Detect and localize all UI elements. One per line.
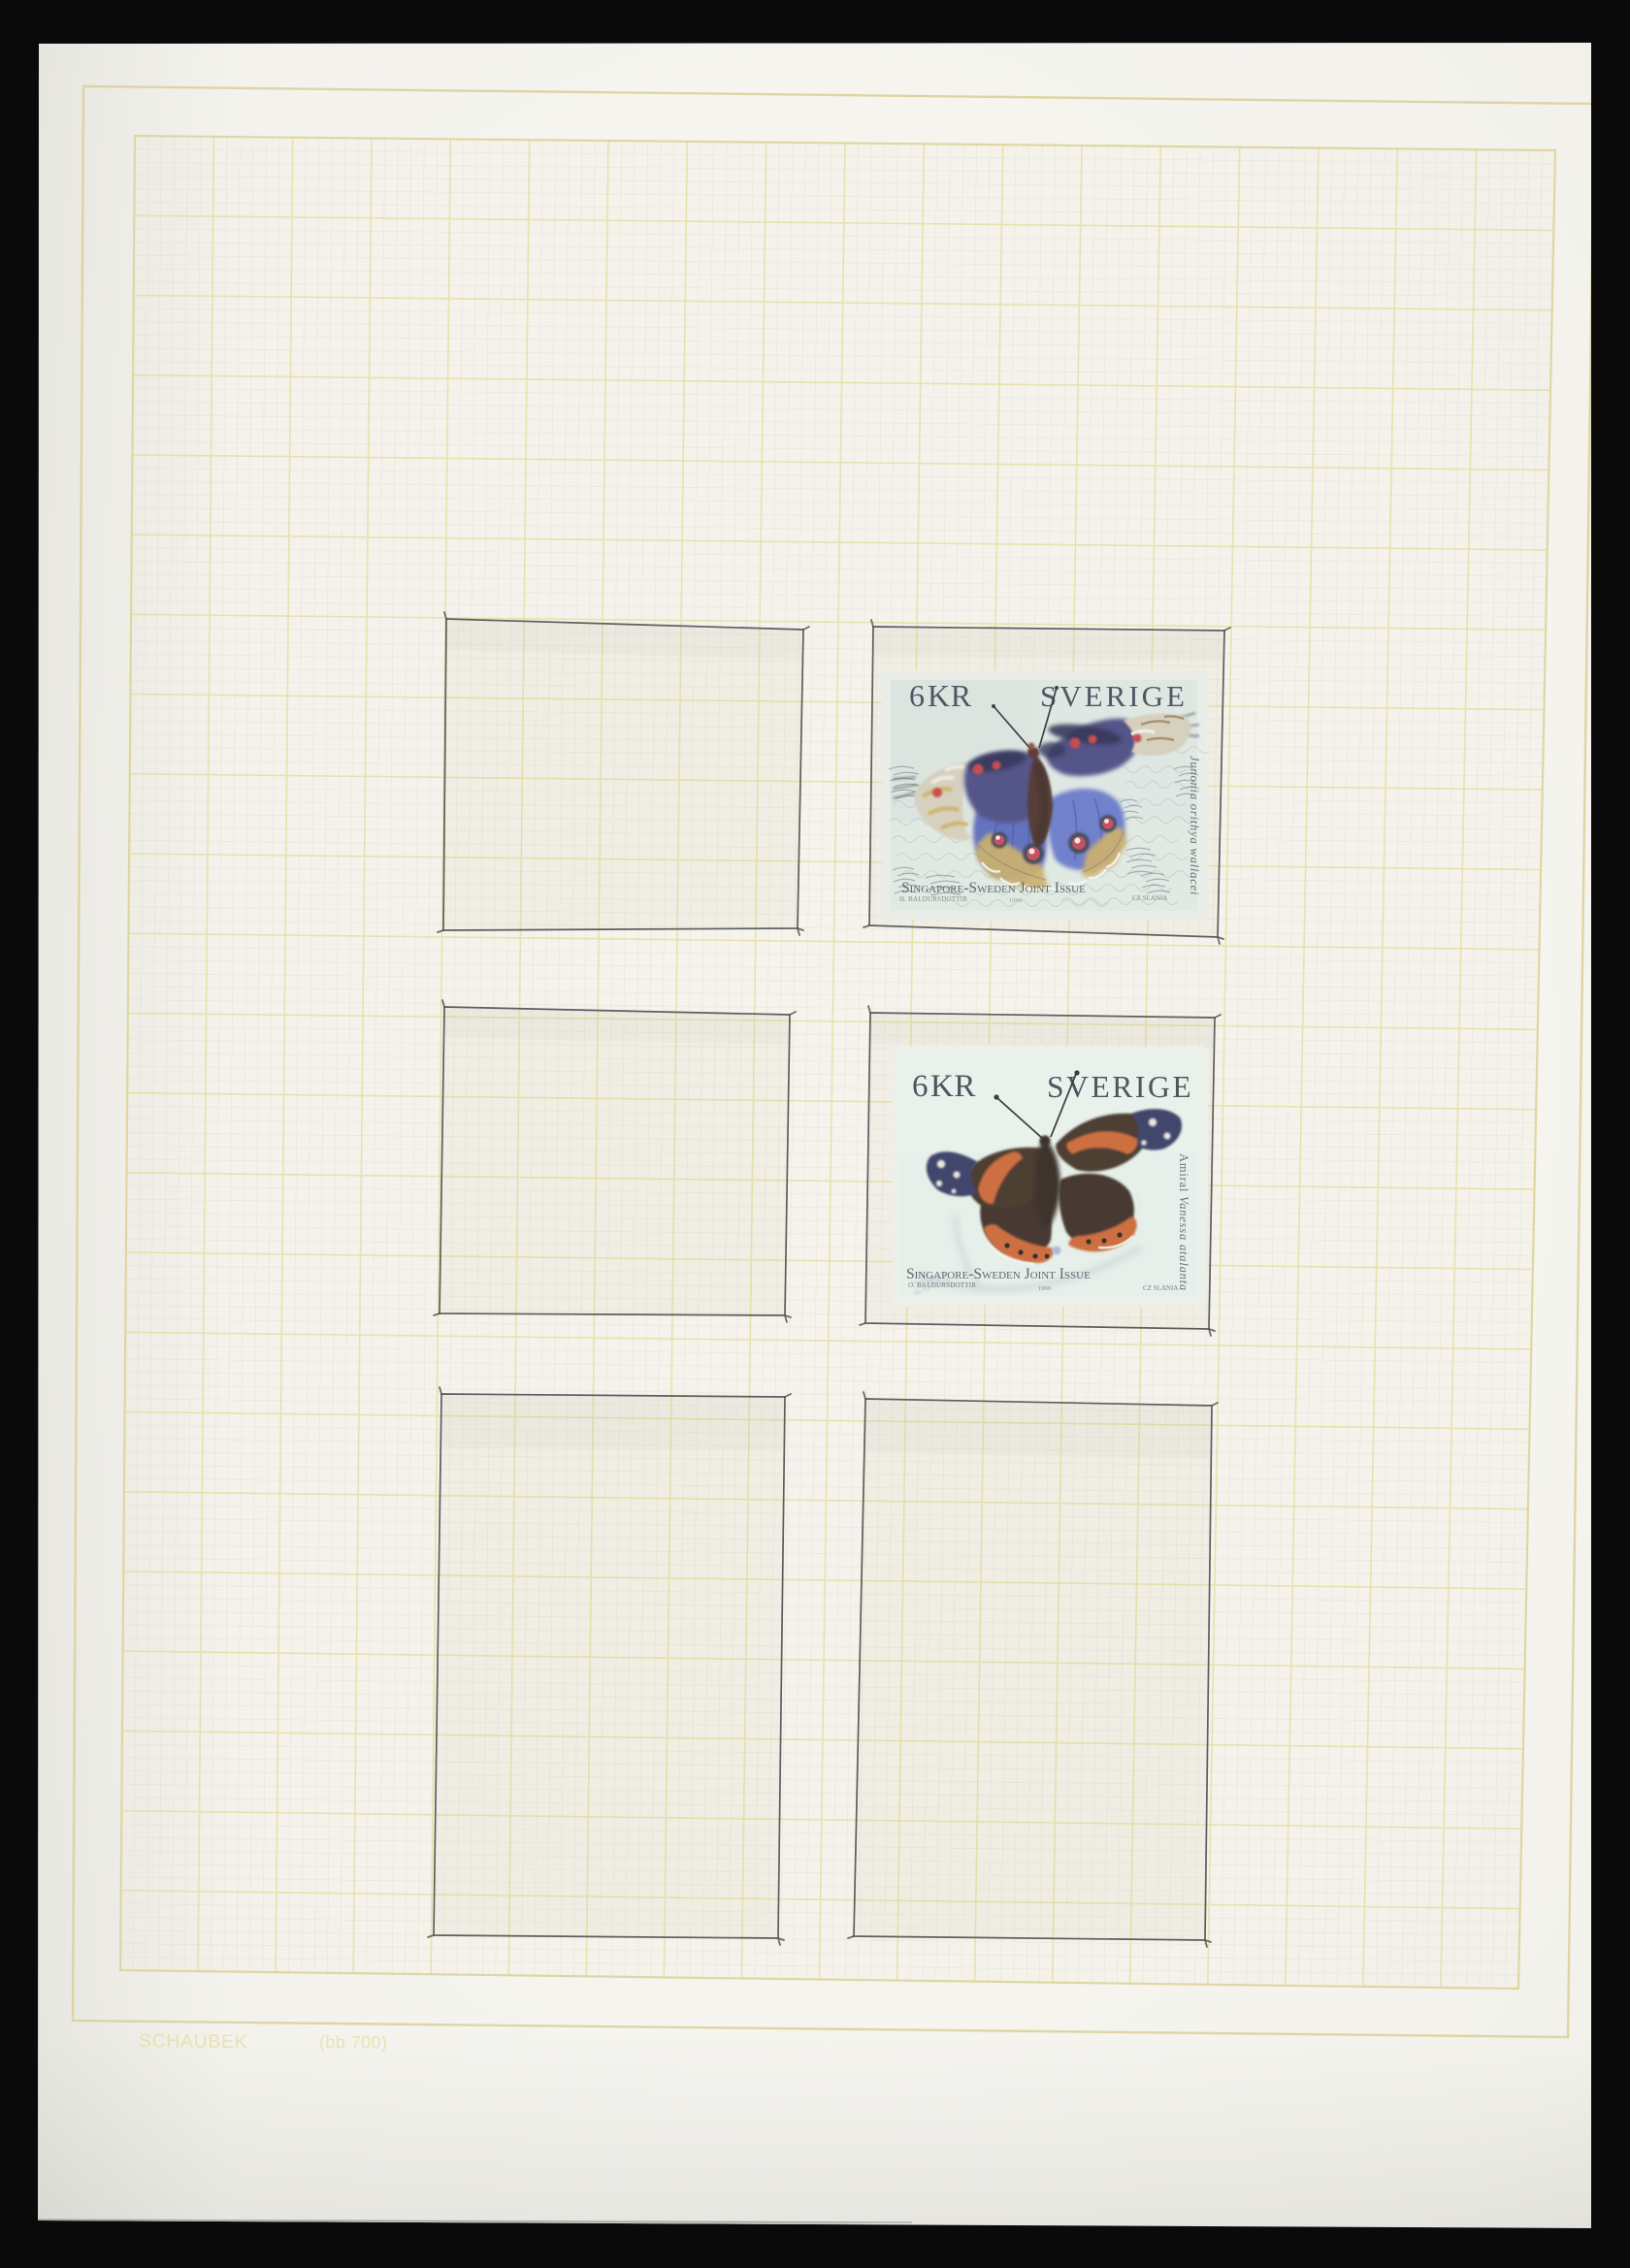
svg-text:SCHAUBEK: SCHAUBEK — [139, 2030, 247, 2053]
svg-text:(bb 700): (bb 700) — [319, 2032, 387, 2053]
